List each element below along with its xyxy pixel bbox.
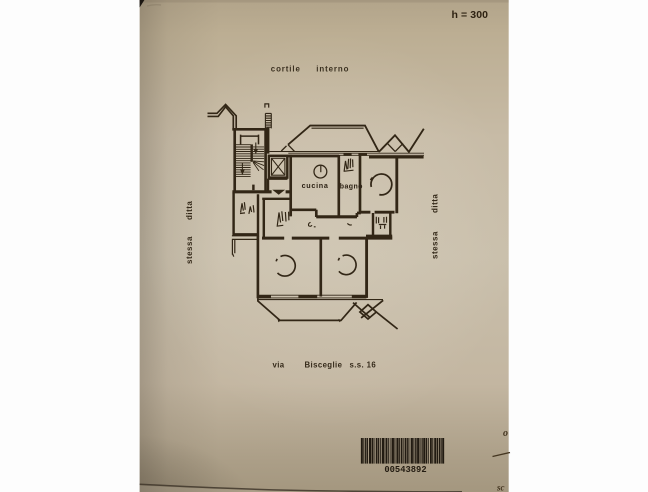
svg-text:Bisceglie: Bisceglie xyxy=(305,361,343,370)
svg-text:stessa: stessa xyxy=(431,231,440,259)
svg-text:interno: interno xyxy=(316,65,349,74)
svg-text:sc: sc xyxy=(496,483,505,492)
svg-text:o: o xyxy=(503,428,508,439)
svg-text:cortile: cortile xyxy=(271,65,301,74)
svg-text:ditta: ditta xyxy=(185,201,194,220)
svg-text:via: via xyxy=(273,361,285,370)
svg-text:h = 300: h = 300 xyxy=(452,9,489,21)
svg-text:00543892: 00543892 xyxy=(384,465,426,475)
svg-text:cucina: cucina xyxy=(302,181,329,190)
svg-text:s.s. 16: s.s. 16 xyxy=(350,361,377,370)
svg-text:bagno: bagno xyxy=(340,184,363,191)
svg-text:stessa: stessa xyxy=(185,236,194,264)
svg-text:ditta: ditta xyxy=(431,194,440,213)
